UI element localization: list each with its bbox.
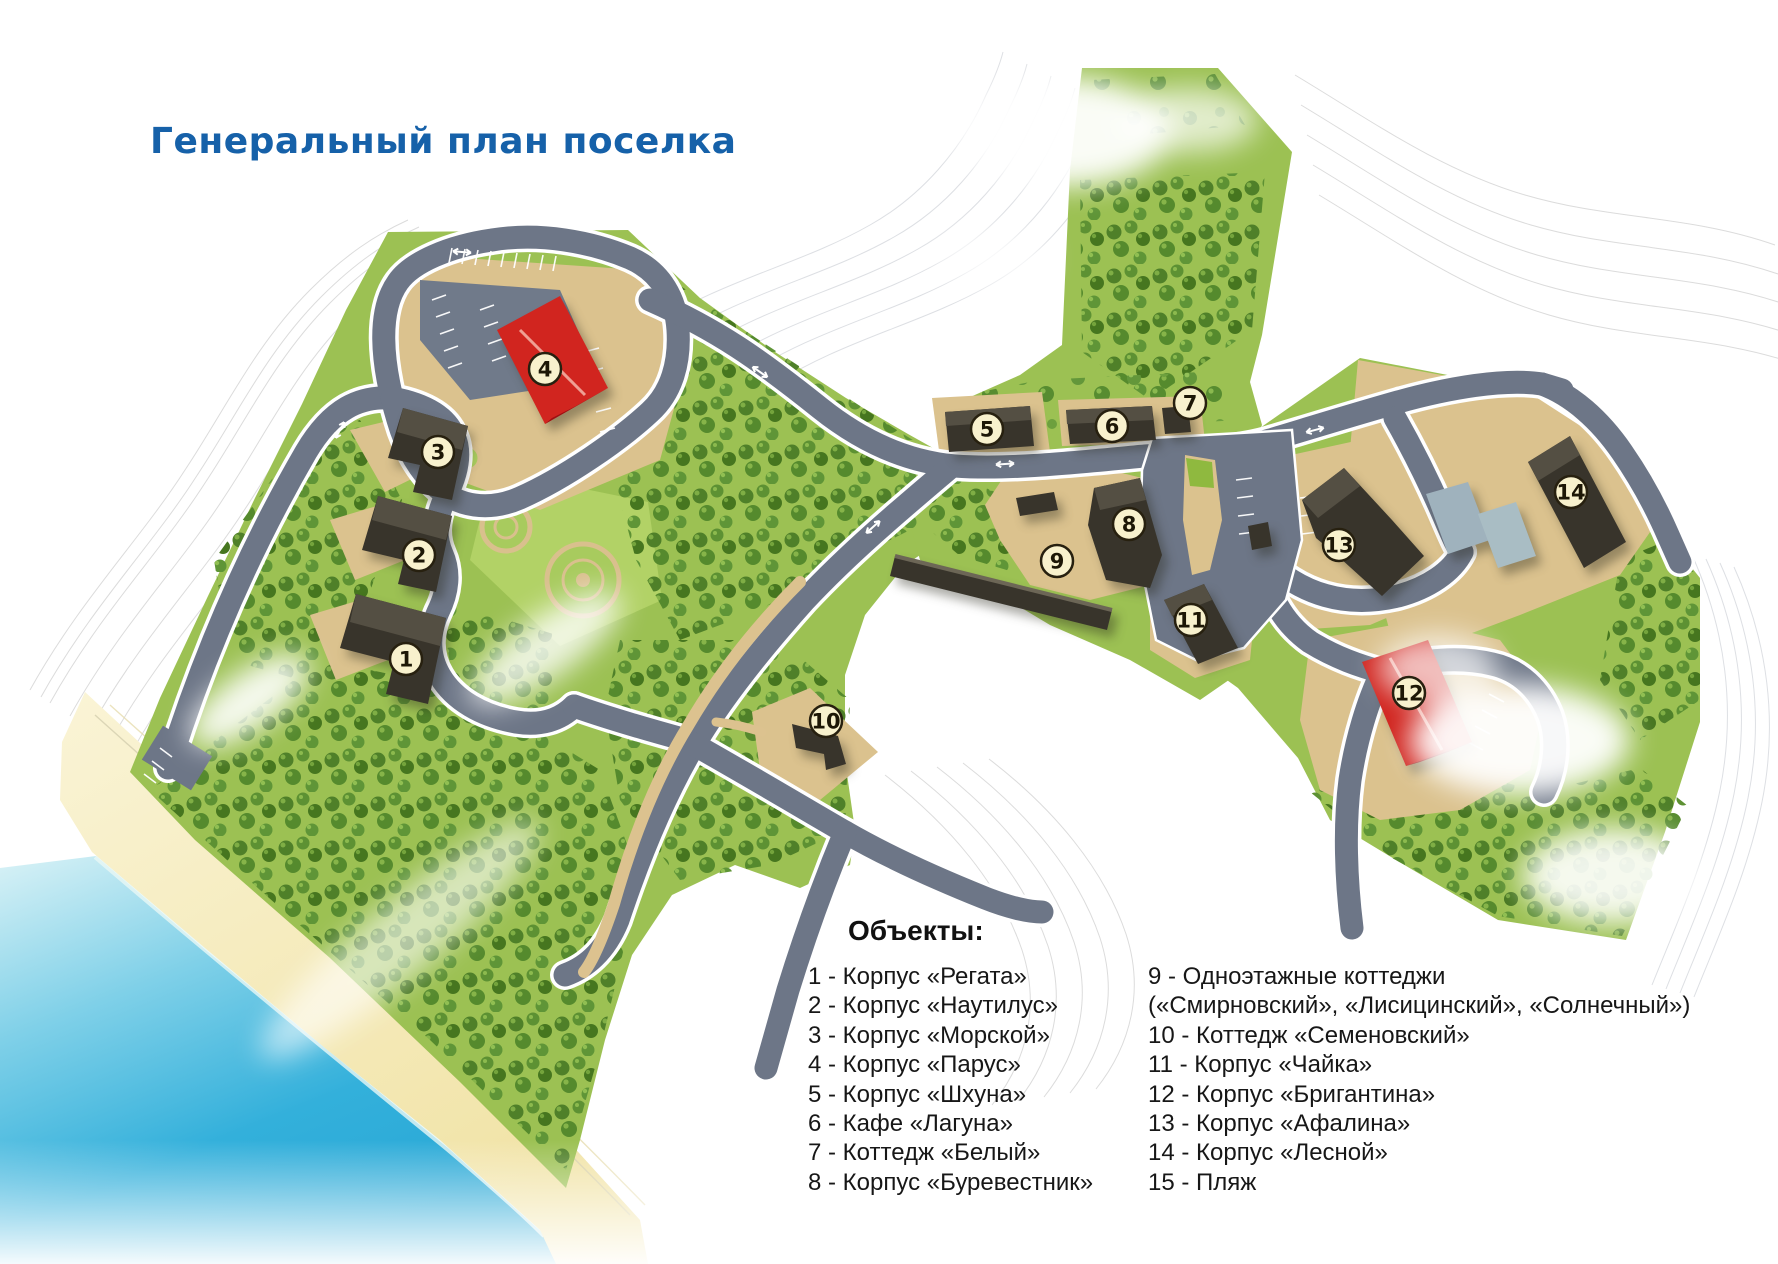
map-marker-9: 9 [1041, 545, 1073, 577]
marker-number: 10 [811, 710, 840, 734]
map-marker-2: 2 [403, 539, 435, 571]
map-marker-14: 14 [1555, 476, 1587, 508]
map-marker-6: 6 [1096, 410, 1128, 442]
site-plan-map: 1234567891011121314 [0, 0, 1778, 1264]
map-marker-13: 13 [1323, 529, 1355, 561]
marker-number: 9 [1050, 550, 1065, 574]
marker-number: 12 [1394, 682, 1423, 706]
marker-number: 13 [1324, 534, 1353, 558]
map-marker-3: 3 [422, 436, 454, 468]
map-marker-10: 10 [810, 705, 842, 737]
marker-number: 11 [1176, 609, 1205, 633]
marker-number: 3 [431, 441, 446, 465]
map-marker-4: 4 [529, 353, 561, 385]
site-plan-page: 1234567891011121314 Генеральный план пос… [0, 0, 1778, 1264]
map-marker-7: 7 [1174, 387, 1206, 419]
marker-number: 5 [980, 418, 995, 442]
marker-number: 7 [1183, 392, 1198, 416]
marker-number: 4 [538, 358, 553, 382]
sea-bottom-fade [0, 1140, 720, 1264]
marker-number: 8 [1122, 513, 1137, 537]
map-marker-5: 5 [971, 413, 1003, 445]
map-marker-8: 8 [1113, 508, 1145, 540]
marker-number: 14 [1556, 481, 1585, 505]
page-title: Генеральный план поселка [150, 121, 736, 162]
map-marker-12: 12 [1393, 677, 1425, 709]
marker-number: 1 [399, 648, 414, 672]
marker-number: 2 [412, 544, 427, 568]
marker-number: 6 [1105, 415, 1120, 439]
map-marker-11: 11 [1175, 604, 1207, 636]
map-marker-1: 1 [390, 643, 422, 675]
